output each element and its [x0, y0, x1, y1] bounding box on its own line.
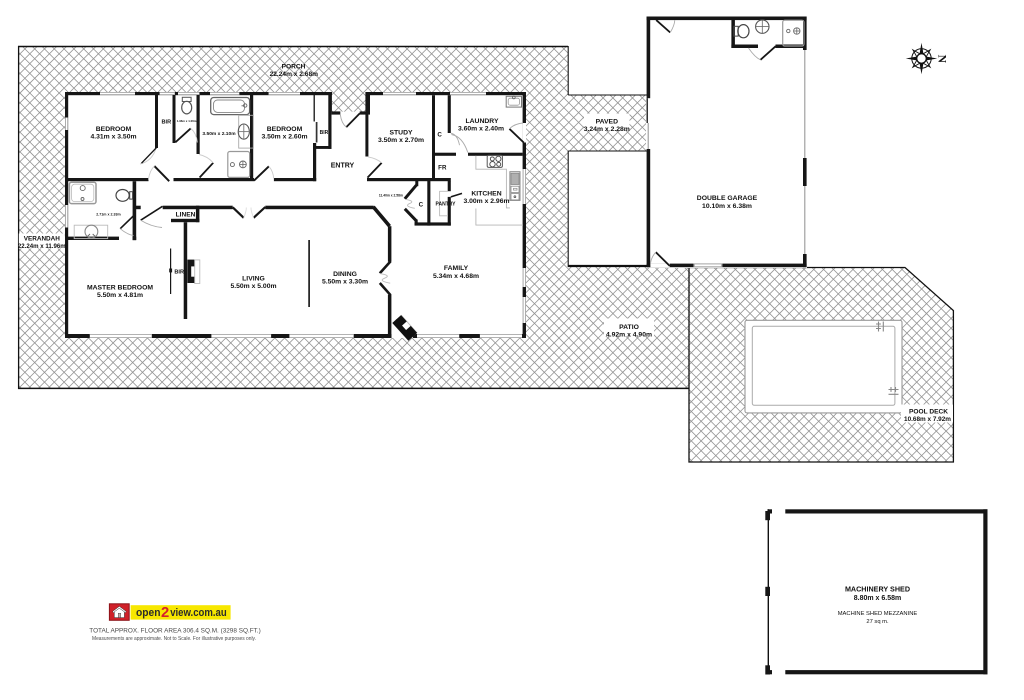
svg-text:MACHINE SHED MEZZANINE: MACHINE SHED MEZZANINE	[838, 611, 918, 617]
svg-text:MASTER BEDROOM: MASTER BEDROOM	[87, 284, 153, 291]
svg-text:BIR: BIR	[161, 119, 171, 125]
svg-text:5.34m x 4.68m: 5.34m x 4.68m	[433, 273, 479, 280]
svg-text:1.96m x 1.06m: 1.96m x 1.06m	[177, 119, 197, 123]
svg-text:3.00m x 2.96m: 3.00m x 2.96m	[463, 198, 509, 205]
svg-text:TOTAL APPROX. FLOOR AREA 306.4: TOTAL APPROX. FLOOR AREA 306.4 SQ.M. (32…	[89, 627, 260, 634]
svg-text:MACHINERY SHED: MACHINERY SHED	[845, 585, 910, 594]
svg-text:5.50m x 4.81m: 5.50m x 4.81m	[97, 292, 143, 299]
svg-text:3.24m x 2.28m: 3.24m x 2.28m	[584, 126, 630, 133]
svg-text:STUDY: STUDY	[389, 129, 413, 136]
svg-text:VERANDAH: VERANDAH	[24, 236, 61, 243]
svg-text:4.31m x 3.50m: 4.31m x 3.50m	[90, 134, 136, 141]
svg-text:POOL DECK: POOL DECK	[909, 409, 948, 416]
svg-text:C: C	[437, 131, 442, 138]
svg-text:FR: FR	[438, 165, 447, 172]
svg-text:C: C	[419, 201, 424, 208]
svg-text:8.80m x 6.58m: 8.80m x 6.58m	[854, 595, 901, 602]
svg-text:22.24m x 11.96m: 22.24m x 11.96m	[18, 243, 66, 250]
svg-text:27 sq m.: 27 sq m.	[866, 619, 889, 625]
svg-text:PANTRY: PANTRY	[436, 202, 457, 208]
svg-text:5.50m x 3.30m: 5.50m x 3.30m	[322, 279, 368, 286]
svg-text:ENTRY: ENTRY	[331, 162, 355, 169]
svg-text:PORCH: PORCH	[282, 63, 306, 70]
svg-text:DOUBLE GARAGE: DOUBLE GARAGE	[697, 195, 758, 202]
svg-text:10.68m x 7.92m: 10.68m x 7.92m	[904, 416, 951, 423]
svg-text:10.10m x 6.38m: 10.10m x 6.38m	[702, 203, 752, 210]
svg-text:22.24m x 2.68m: 22.24m x 2.68m	[270, 71, 319, 78]
svg-text:BEDROOM: BEDROOM	[267, 126, 303, 133]
svg-text:LAUNDRY: LAUNDRY	[466, 118, 499, 125]
svg-text:open: open	[136, 607, 161, 619]
svg-text:3.50m x 2.10m: 3.50m x 2.10m	[202, 131, 236, 137]
svg-text:2: 2	[161, 605, 169, 621]
svg-text:PATIO: PATIO	[619, 324, 639, 331]
svg-text:3.60m x 2.40m: 3.60m x 2.40m	[458, 125, 504, 132]
svg-text:Measurements are approximate.: Measurements are approximate. Not to Sca…	[92, 636, 256, 642]
svg-text:BIR: BIR	[320, 130, 329, 136]
svg-text:DINING: DINING	[333, 271, 357, 278]
svg-text:11.40m x 2.58m: 11.40m x 2.58m	[379, 193, 403, 197]
svg-text:FAMILY: FAMILY	[444, 265, 469, 272]
svg-text:PAVED: PAVED	[596, 118, 618, 125]
svg-text:3.50m x 2.60m: 3.50m x 2.60m	[261, 134, 307, 141]
svg-text:LINEN: LINEN	[176, 212, 196, 219]
svg-text:BIR: BIR	[174, 270, 184, 276]
svg-text:2.71m x 2.33m: 2.71m x 2.33m	[96, 212, 120, 216]
svg-text:4.92m x 4.90m: 4.92m x 4.90m	[606, 331, 652, 338]
svg-text:N: N	[935, 55, 947, 64]
svg-text:5.50m x 5.00m: 5.50m x 5.00m	[230, 283, 276, 290]
svg-text:LIVING: LIVING	[242, 275, 265, 282]
svg-text:KITCHEN: KITCHEN	[471, 190, 501, 197]
svg-text:BEDROOM: BEDROOM	[96, 126, 132, 133]
svg-text:3.50m x 2.70m: 3.50m x 2.70m	[378, 137, 424, 144]
svg-text:view.com.au: view.com.au	[170, 607, 227, 619]
